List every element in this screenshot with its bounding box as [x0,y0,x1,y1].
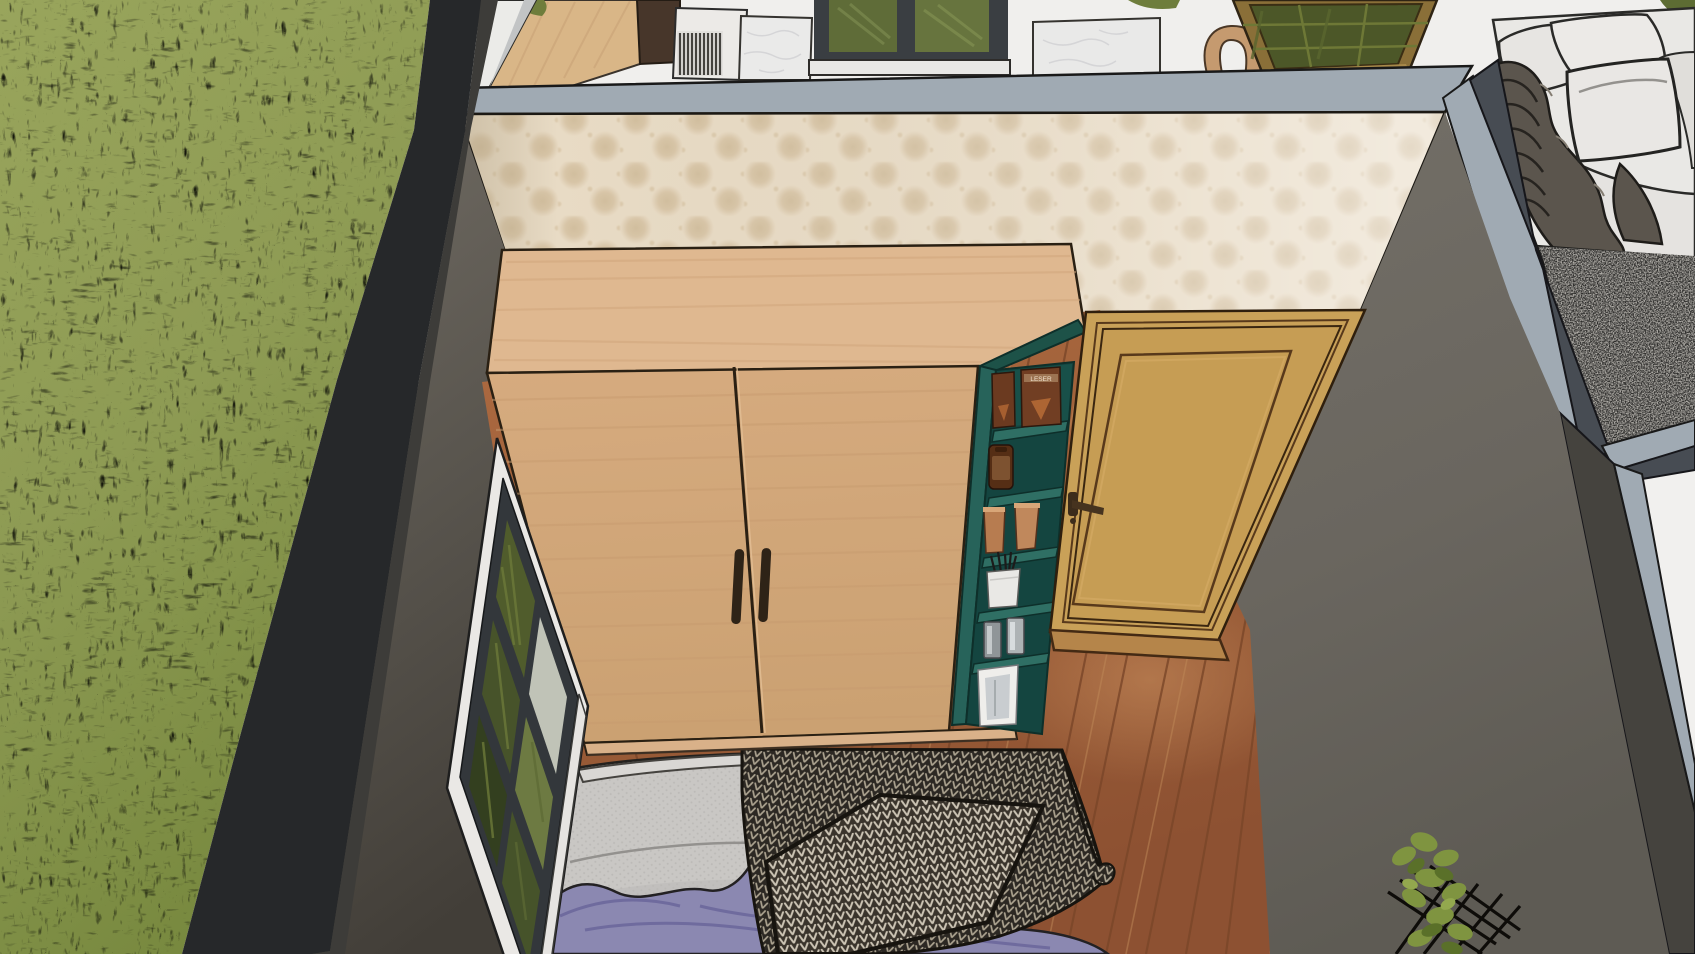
svg-text:LESER: LESER [1030,376,1052,383]
